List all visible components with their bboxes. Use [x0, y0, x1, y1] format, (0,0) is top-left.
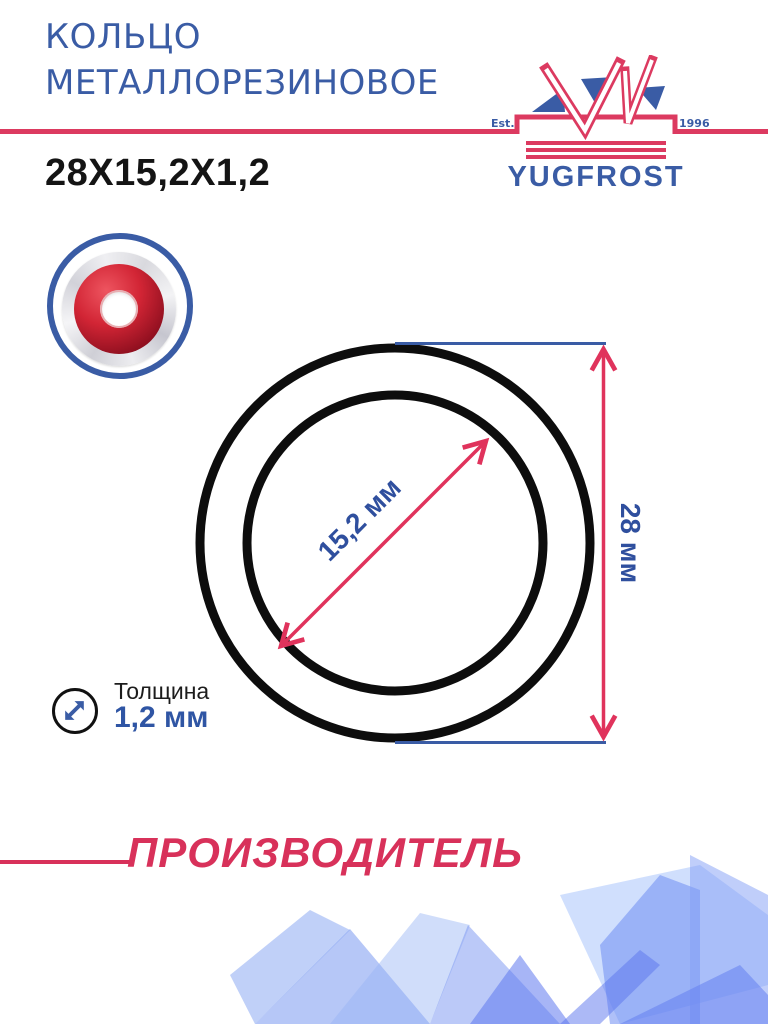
logo-stripes [526, 141, 666, 159]
ring-hole [100, 290, 138, 328]
inner-circle [247, 395, 543, 691]
outer-circle [200, 348, 590, 738]
thickness-icon [52, 688, 98, 734]
product-title-line2: МЕТАЛЛОРЕЗИНОВОЕ [45, 60, 485, 106]
logo-frame [517, 117, 675, 134]
header-divider-left [0, 129, 519, 134]
thickness-value: 1,2 мм [114, 701, 208, 735]
brand-logo: Est. 1996 YUGFROST [488, 55, 713, 195]
outer-diameter-label: 28 мм [615, 503, 646, 583]
technical-drawing: 28 мм 15,2 мм [170, 330, 650, 760]
logo-brand-name: YUGFROST [507, 161, 684, 193]
inner-diameter-label: 15,2 мм [312, 472, 407, 567]
product-title: КОЛЬЦО МЕТАЛЛОРЕЗИНОВОЕ [45, 14, 485, 106]
decor-triangles [0, 855, 768, 1024]
metal-ring-photo [62, 252, 176, 366]
logo-year: 1996 [679, 117, 710, 130]
diagonal-double-arrow-icon [55, 691, 94, 730]
product-title-line1: КОЛЬЦО [45, 14, 485, 60]
logo-est-label: Est. [491, 117, 515, 130]
size-code: 28X15,2X1,2 [45, 152, 270, 195]
product-card: КОЛЬЦО МЕТАЛЛОРЕЗИНОВОЕ 28X15,2X1,2 Est. [0, 0, 768, 1024]
rubber-ring-photo [74, 264, 164, 354]
